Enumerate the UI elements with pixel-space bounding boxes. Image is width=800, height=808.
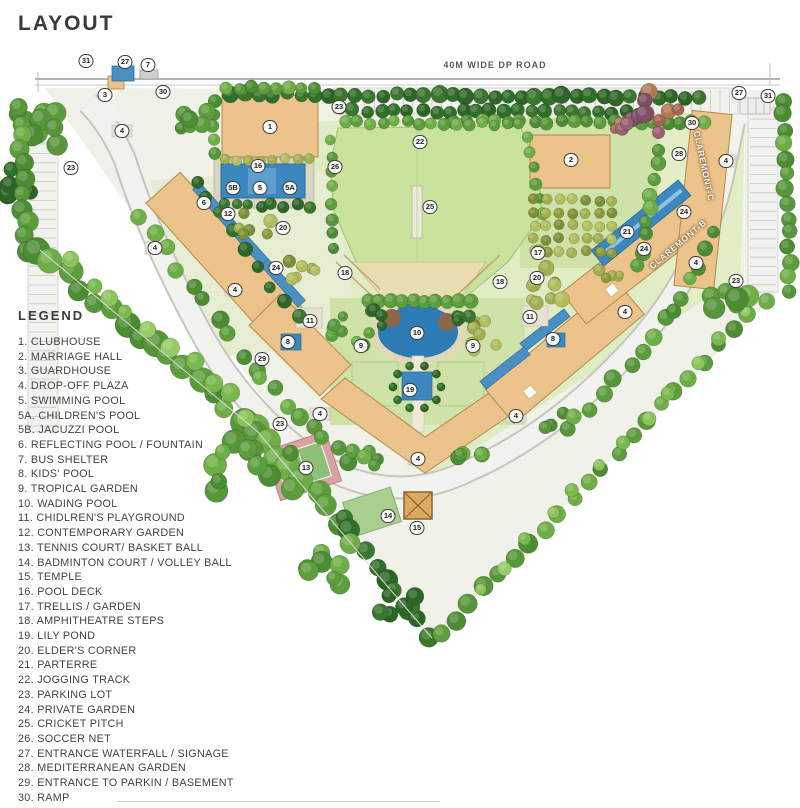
legend-item-2: 2. MARRIAGE HALL [18, 350, 258, 365]
legend-item-30: 30. RAMP [18, 791, 258, 806]
legend-list: 1. CLUBHOUSE2. MARRIAGE HALL3. GUARDHOUS… [18, 335, 258, 808]
legend-item-26: 26. SOCCER NET [18, 732, 258, 747]
legend-item-22: 22. JOGGING TRACK [18, 673, 258, 688]
legend-item-23: 23. PARKING LOT [18, 688, 258, 703]
legend-item-5: 5. SWIMMING POOL [18, 394, 258, 409]
legend-item-28: 28. MEDITERRANEAN GARDEN [18, 761, 258, 776]
legend-item-1: 1. CLUBHOUSE [18, 335, 258, 350]
legend-item-29: 29. ENTRANCE TO PARKIN / BASEMENT [18, 776, 258, 791]
legend-item-25: 25. CRICKET PITCH [18, 717, 258, 732]
legend-item-14: 14. BADMINTON COURT / VOLLEY BALL [18, 556, 258, 571]
legend-heading: LEGEND [18, 308, 258, 323]
legend-item-21: 21. PARTERRE [18, 658, 258, 673]
legend-item-24: 24. PRIVATE GARDEN [18, 703, 258, 718]
legend-item-12: 12. CONTEMPORARY GARDEN [18, 526, 258, 541]
legend-item-9: 9. TROPICAL GARDEN [18, 482, 258, 497]
legend-item-4: 4. DROP-OFF PLAZA [18, 379, 258, 394]
site-layout-plan: LAYOUT 40M WIDE DP ROAD CLAREMONT-CCLARE… [0, 0, 800, 808]
legend-panel: LEGEND 1. CLUBHOUSE2. MARRIAGE HALL3. GU… [18, 308, 258, 808]
legend-item-8: 8. KIDS' POOL [18, 467, 258, 482]
legend-item-3: 3. GUARDHOUSE [18, 364, 258, 379]
legend-item-15: 15. TEMPLE [18, 570, 258, 585]
page-title: LAYOUT [18, 12, 114, 36]
bottom-divider [118, 801, 440, 802]
legend-item-16: 16. POOL DECK [18, 585, 258, 600]
legend-item-18: 18. AMPHITHEATRE STEPS [18, 614, 258, 629]
road-label: 40M WIDE DP ROAD [385, 60, 605, 70]
legend-item-13: 13. TENNIS COURT/ BASKET BALL [18, 541, 258, 556]
legend-item-27: 27. ENTRANCE WATERFALL / SIGNAGE [18, 747, 258, 762]
legend-item-17: 17. TRELLIS / GARDEN [18, 600, 258, 615]
legend-item-10: 10. WADING POOL [18, 497, 258, 512]
legend-item-7: 7. BUS SHELTER [18, 453, 258, 468]
legend-item-20: 20. ELDER'S CORNER [18, 644, 258, 659]
legend-item-5A: 5A. CHILDREN'S POOL [18, 409, 258, 424]
legend-item-11: 11. CHIDLREN'S PLAYGROUND [18, 511, 258, 526]
legend-item-19: 19. LILY POND [18, 629, 258, 644]
legend-item-6: 6. REFLECTING POOL / FOUNTAIN [18, 438, 258, 453]
legend-item-5B: 5B. JACUZZI POOL [18, 423, 258, 438]
